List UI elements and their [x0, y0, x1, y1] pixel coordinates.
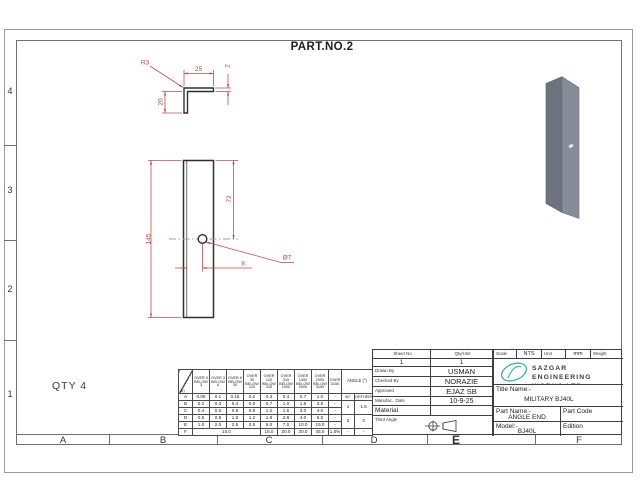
tol-value: 1.6 [295, 401, 312, 408]
tol-value: 45.0 [312, 429, 329, 436]
tol-value: - [329, 401, 342, 408]
tol-row-label: B [179, 401, 193, 408]
tol-value: 30.0 [295, 429, 312, 436]
tol-value: 1.2 [244, 415, 261, 422]
manufacture-date-label: Manufac., Date [373, 397, 431, 406]
part-name-value: ANGLE END [494, 414, 560, 421]
drawn-by-label: Drawn By [373, 367, 431, 377]
tol-value: 1.0 [193, 422, 210, 429]
tol-row-f: F 10.0 15.0 20.0 30.0 45.0 1.5% - - [179, 429, 373, 436]
front-view-dim-texts: 145 72 Ø7 8 [146, 195, 292, 267]
tol-col-header: OVER 0 BELOW 3 [193, 370, 210, 394]
tol-value: 1.5% [329, 429, 342, 436]
tol-header-row: (±) OVER 0 BELOW 3 OVER 3 BELOW 6 OVER 6… [179, 370, 373, 394]
third-angle-label: Third Angle [375, 417, 397, 422]
unit-value: mm [566, 350, 591, 359]
tol-angle-sub: 90° [342, 394, 355, 401]
title-name-cell: Title Name:- MILITARY BJ40L [493, 385, 623, 407]
tol-value: 1.0 [278, 401, 295, 408]
tol-value: 0.2 [193, 401, 210, 408]
tol-col-header: OVER 120 BELOW 315 [261, 370, 278, 394]
title-name-label: Title Name:- [494, 385, 623, 393]
tol-value: 4.0 [295, 415, 312, 422]
tolerance-table: (±) OVER 0 BELOW 3 OVER 3 BELOW 6 OVER 6… [178, 369, 373, 436]
tol-angle-value: 1.5 [355, 401, 373, 415]
tol-value: 15.0 [312, 422, 329, 429]
tol-corner-cell: (±) [179, 370, 193, 394]
part-code-label: Part Code [561, 407, 623, 422]
tol-value: 7.0 [278, 422, 295, 429]
scale-label: Scale [493, 350, 517, 359]
drawn-by-value: USMAN [431, 367, 493, 377]
tol-angle-sub: ORTHERS [355, 394, 373, 401]
sheet-no-label: Sheet No [373, 350, 431, 359]
title-name-value: MILITARY BJ40L [494, 396, 604, 403]
material-label: Material [373, 406, 431, 416]
tol-value: 2.8 [278, 415, 295, 422]
tol-row-b: B 0.2 0.3 0.4 0.5 0.7 1.0 1.6 2.5 - 1 1.… [179, 401, 373, 408]
angle-profile-outline [184, 88, 214, 113]
tol-col-header: OVER 30 BELOW 120 [244, 370, 261, 394]
sheet-no-value: 1 [373, 359, 431, 367]
dim-text-width: 25 [195, 66, 203, 73]
tol-angle-header: ANGLE (°) [342, 370, 373, 394]
unit-label: Unit [542, 350, 566, 359]
tol-value: 0.4 [227, 401, 244, 408]
tol-value: 0.6 [227, 408, 244, 415]
iso-view-angle-part [546, 77, 579, 219]
tol-angle-value: 1 [342, 401, 355, 415]
tol-value: - [329, 422, 342, 429]
manufacture-date-value: 10-9-25 [431, 397, 493, 406]
dim-text-height: 145 [146, 233, 153, 244]
third-angle-cell: Third Angle [373, 416, 493, 436]
approved-label: Approved [373, 387, 431, 397]
tol-value: 1.2 [261, 408, 278, 415]
tol-value: - [329, 415, 342, 422]
tol-value: - [329, 408, 342, 415]
tol-angle-value: 2 [342, 415, 355, 429]
tol-value: 4.0 [312, 408, 329, 415]
tol-value: 0.15 [227, 394, 244, 401]
qty-unit-label: Qty/Unit [431, 350, 493, 359]
tol-value: 10.0 [193, 429, 261, 436]
tol-value: 5.0 [261, 422, 278, 429]
front-view [169, 161, 238, 318]
tol-row-label: D [179, 415, 193, 422]
company-name: SAZGAR ENGINEERING WORKS LTD. [532, 364, 623, 385]
tol-value: 1.0 [312, 394, 329, 401]
tol-row-d: D 0.5 0.8 1.0 1.2 1.8 2.8 4.0 6.0 - 2 3 [179, 415, 373, 422]
title-block: Sheet No Qty/Unit 1 1 Drawn By USMAN Che… [372, 349, 622, 435]
dim-text-radius: R3 [141, 60, 150, 67]
tol-value: 20.0 [278, 429, 295, 436]
tol-value: - [329, 394, 342, 401]
iso-left-face [546, 77, 562, 213]
dim-text-leg: 20 [158, 98, 165, 106]
tol-value: 2.5 [227, 422, 244, 429]
tol-value: 0.05 [193, 394, 210, 401]
tol-col-header: OVER 1000 BELOW 2000 [295, 370, 312, 394]
model-cell: Model:- BJ40L [493, 422, 561, 436]
tol-value: 15.0 [261, 429, 278, 436]
tol-value: 0.4 [278, 394, 295, 401]
tol-value: 1.0 [227, 415, 244, 422]
tol-value: 0.3 [210, 401, 227, 408]
tol-value: 0.5 [244, 401, 261, 408]
top-view-angle-profile [184, 88, 214, 113]
tol-value: 0.1 [210, 394, 227, 401]
tol-col-header: OVER 6 BELOW 30 [227, 370, 244, 394]
tol-row-label: A [179, 394, 193, 401]
tol-value: 0.8 [210, 415, 227, 422]
tol-col-header: OVER 2000 BELOW 3150 [312, 370, 329, 394]
tol-angle-value: 3 [355, 415, 373, 429]
tol-value: 0.5 [193, 415, 210, 422]
part-name-cell: Part Name:- ANGLE END [493, 407, 561, 422]
edition-label: Edition [561, 422, 623, 436]
dim-text-hole-vertical: 72 [226, 195, 233, 203]
dim-text-hole-dia: Ø7 [283, 255, 292, 262]
tol-value: 0.7 [295, 394, 312, 401]
scale-value: NTS [517, 350, 542, 359]
tol-col-header: OVER 3 BELOW 6 [210, 370, 227, 394]
tol-value: 0.2 [244, 394, 261, 401]
tol-value: 1.8 [261, 415, 278, 422]
company-logo-icon [497, 360, 531, 384]
tol-value: 0.4 [193, 408, 210, 415]
tol-value: 6.0 [312, 415, 329, 422]
dim-text-hole-horizontal: 8 [241, 261, 245, 268]
tol-col-header: OVER 315 BELOW 1000 [278, 370, 295, 394]
company-cell: SAZGAR ENGINEERING WORKS LTD. [493, 359, 623, 385]
tol-angle-value: - [355, 429, 373, 436]
checked-by-value: NORAZIE [431, 377, 493, 387]
material-value [431, 406, 493, 416]
model-value: BJ40L [494, 428, 560, 435]
qty-unit-value: 1 [431, 359, 493, 367]
tol-value: 3.5 [244, 422, 261, 429]
tol-row-label: C [179, 408, 193, 415]
hole-circle [198, 235, 207, 244]
approved-value: EJAZ SB [431, 387, 493, 397]
tol-angle-value: - [342, 429, 355, 436]
tol-row-label: E [179, 422, 193, 429]
tol-value: 0.3 [261, 394, 278, 401]
third-angle-icon [425, 419, 463, 433]
tol-value: 2.5 [312, 401, 329, 408]
dim-text-thickness: 2 [225, 64, 232, 68]
tol-value: 2.0 [210, 422, 227, 429]
tol-value: 0.8 [244, 408, 261, 415]
tol-value: 3.0 [295, 408, 312, 415]
weight-label: Weight [591, 350, 623, 359]
tol-value: 10.0 [295, 422, 312, 429]
tol-value: 0.5 [210, 408, 227, 415]
tol-value: 0.7 [261, 401, 278, 408]
tol-row-label: F [179, 429, 193, 436]
tol-col-header: OVER 3150 [329, 370, 342, 394]
tol-row-a: A 0.05 0.1 0.15 0.2 0.3 0.4 0.7 1.0 - 90… [179, 394, 373, 401]
checked-by-label: Checked By [373, 377, 431, 387]
tol-value: 1.6 [278, 408, 295, 415]
